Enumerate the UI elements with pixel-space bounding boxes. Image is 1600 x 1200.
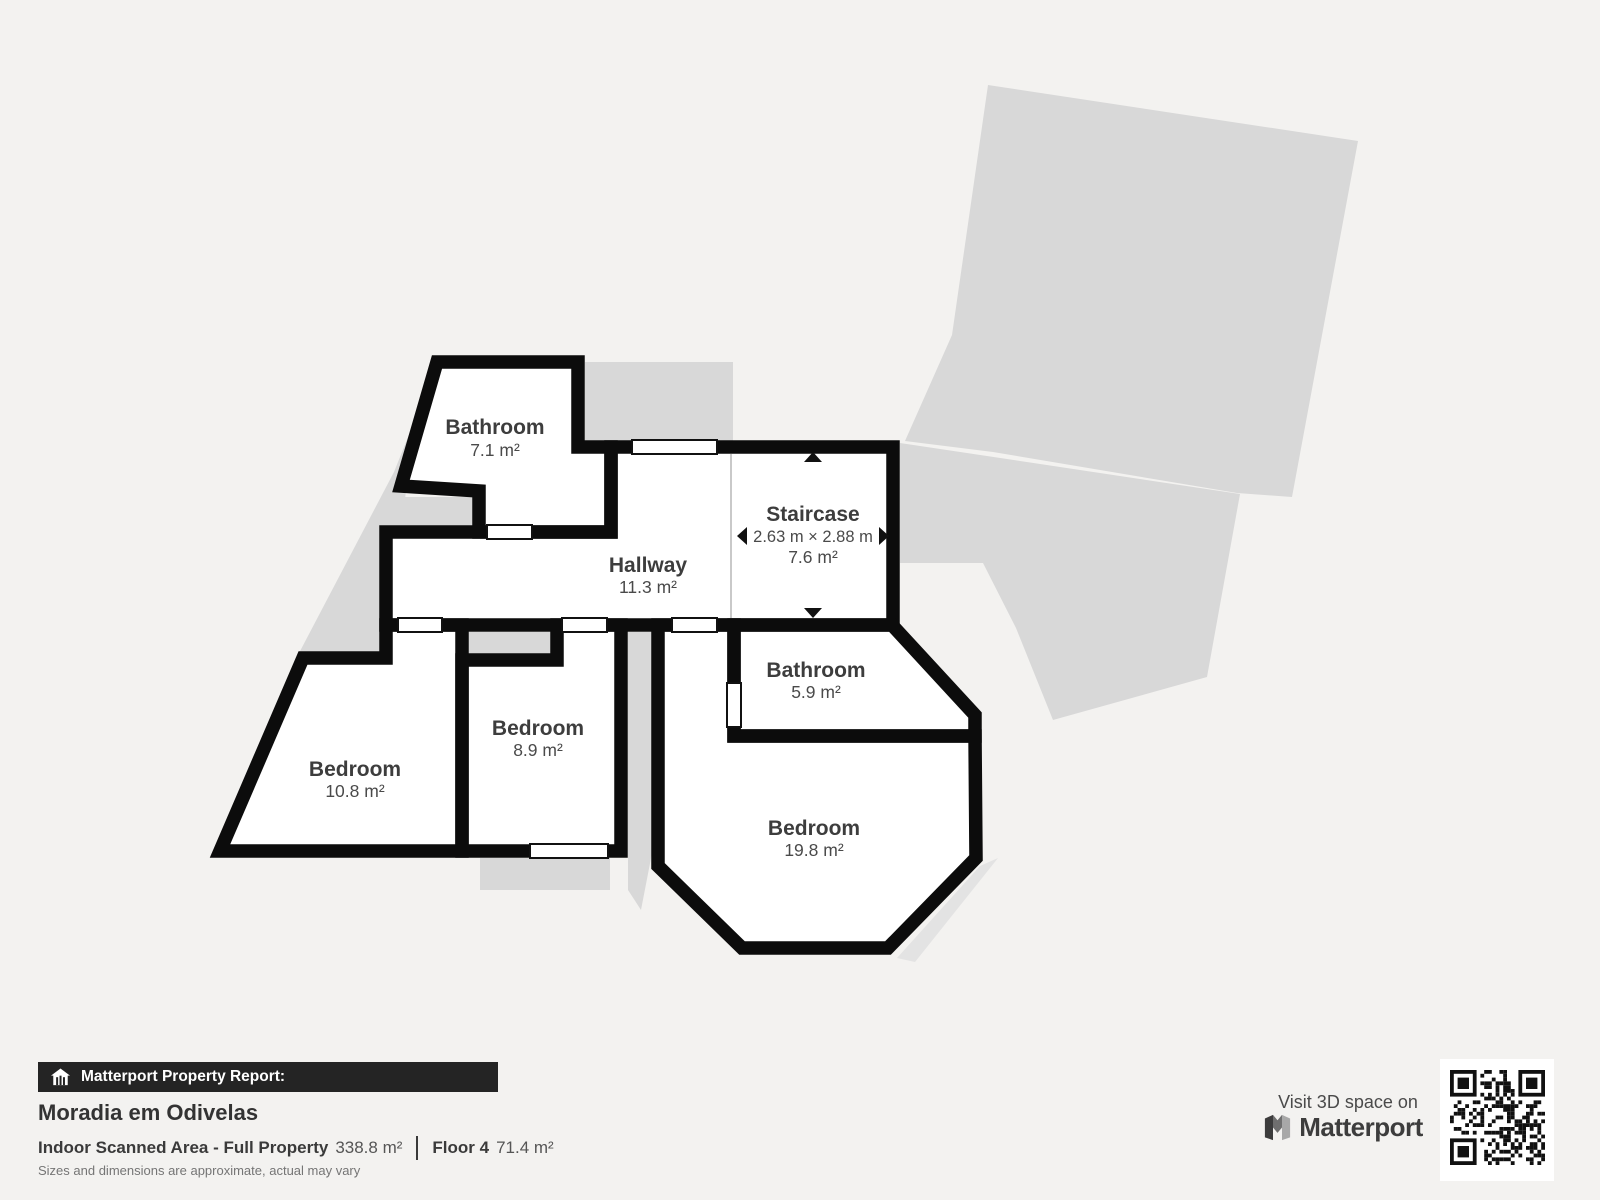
- room-label-hallway-name: Hallway: [609, 554, 688, 577]
- room-label-bathroom-right-area: 5.9 m²: [791, 682, 841, 702]
- opening-bedroom-large-door: [672, 618, 717, 632]
- underfloor-shape-below-bedroom: [480, 858, 610, 890]
- scanned-area-value: 338.8 m²: [335, 1138, 402, 1158]
- room-label-bedroom-small-name: Bedroom: [492, 717, 584, 740]
- report-bar-label: Matterport Property Report:: [81, 1068, 285, 1086]
- underfloor-shape-between-bedrooms: [628, 632, 652, 910]
- room-label-bedroom-large-area: 19.8 m²: [784, 840, 843, 860]
- room-label-bedroom-small-area: 8.9 m²: [513, 740, 563, 760]
- area-info-line: Indoor Scanned Area - Full Property 338.…: [38, 1136, 554, 1160]
- house-icon: [51, 1068, 70, 1086]
- matterport-floorplan-page: Bathroom 7.1 m² Hallway 11.3 m² Staircas…: [0, 0, 1600, 1200]
- property-name: Moradia em Odivelas: [38, 1100, 258, 1126]
- room-label-staircase-area: 7.6 m²: [788, 547, 838, 567]
- room-label-bedroom-left-area: 10.8 m²: [325, 781, 384, 801]
- brand-row: Matterport: [1248, 1112, 1438, 1143]
- room-label-staircase-dims: 2.63 m × 2.88 m: [753, 528, 873, 546]
- qr-code: [1440, 1059, 1554, 1181]
- room-label-bedroom-left-name: Bedroom: [309, 758, 401, 781]
- brand-wordmark: Matterport: [1299, 1112, 1423, 1143]
- qr-code-grid: [1450, 1070, 1545, 1165]
- floor-area-value: 71.4 m²: [496, 1138, 554, 1158]
- opening-hallway-top: [632, 440, 717, 454]
- room-label-bathroom-right-name: Bathroom: [766, 659, 865, 682]
- disclaimer-text: Sizes and dimensions are approximate, ac…: [38, 1163, 360, 1178]
- visit-3d-label: Visit 3D space on: [1258, 1092, 1438, 1113]
- room-label-bedroom-large-name: Bedroom: [768, 817, 860, 840]
- underfloor-shape-below-bathroom: [394, 497, 477, 527]
- opening-bathroom-right-door: [727, 683, 741, 727]
- underfloor-shape-top-right: [905, 85, 1358, 497]
- opening-bedroom-small-door: [562, 618, 607, 632]
- underfloor-shape-above-bedroom: [462, 632, 557, 655]
- opening-bedroom-small-window: [530, 844, 608, 858]
- room-label-bathroom-top-area: 7.1 m²: [470, 440, 520, 460]
- info-separator: [416, 1136, 418, 1160]
- opening-bedroom-left-door: [398, 618, 442, 632]
- room-label-staircase-name: Staircase: [766, 503, 859, 526]
- floor-plan: Bathroom 7.1 m² Hallway 11.3 m² Staircas…: [0, 0, 1600, 1200]
- room-label-hallway-area: 11.3 m²: [619, 577, 677, 597]
- matterport-logo-icon: [1263, 1114, 1292, 1141]
- room-label-bathroom-top-name: Bathroom: [445, 416, 544, 439]
- floor-label: Floor 4: [432, 1138, 489, 1158]
- opening-bathroom-top-door: [487, 525, 532, 539]
- underfloor-shape-above-hallway: [585, 362, 733, 443]
- scanned-area-label: Indoor Scanned Area - Full Property: [38, 1138, 328, 1158]
- report-bar: Matterport Property Report:: [38, 1062, 498, 1092]
